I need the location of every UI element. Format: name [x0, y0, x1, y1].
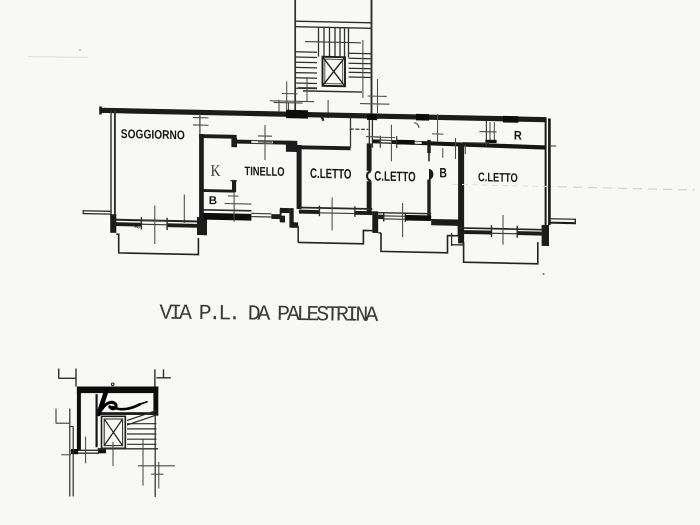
- svg-text:B: B: [209, 195, 217, 207]
- svg-text:K: K: [211, 162, 221, 180]
- svg-text:C.LETTO: C.LETTO: [374, 169, 416, 185]
- svg-text:SOGGIORNO: SOGGIORNO: [121, 127, 185, 142]
- svg-text:C.LETTO: C.LETTO: [478, 170, 518, 185]
- svg-text:R: R: [514, 128, 522, 142]
- svg-text:B: B: [439, 165, 447, 180]
- svg-text:VIA P.L. DA PALESTRINA: VIA P.L. DA PALESTRINA: [159, 302, 378, 328]
- svg-text:TINELLO: TINELLO: [245, 164, 285, 179]
- svg-text:C.LETTO: C.LETTO: [310, 166, 352, 182]
